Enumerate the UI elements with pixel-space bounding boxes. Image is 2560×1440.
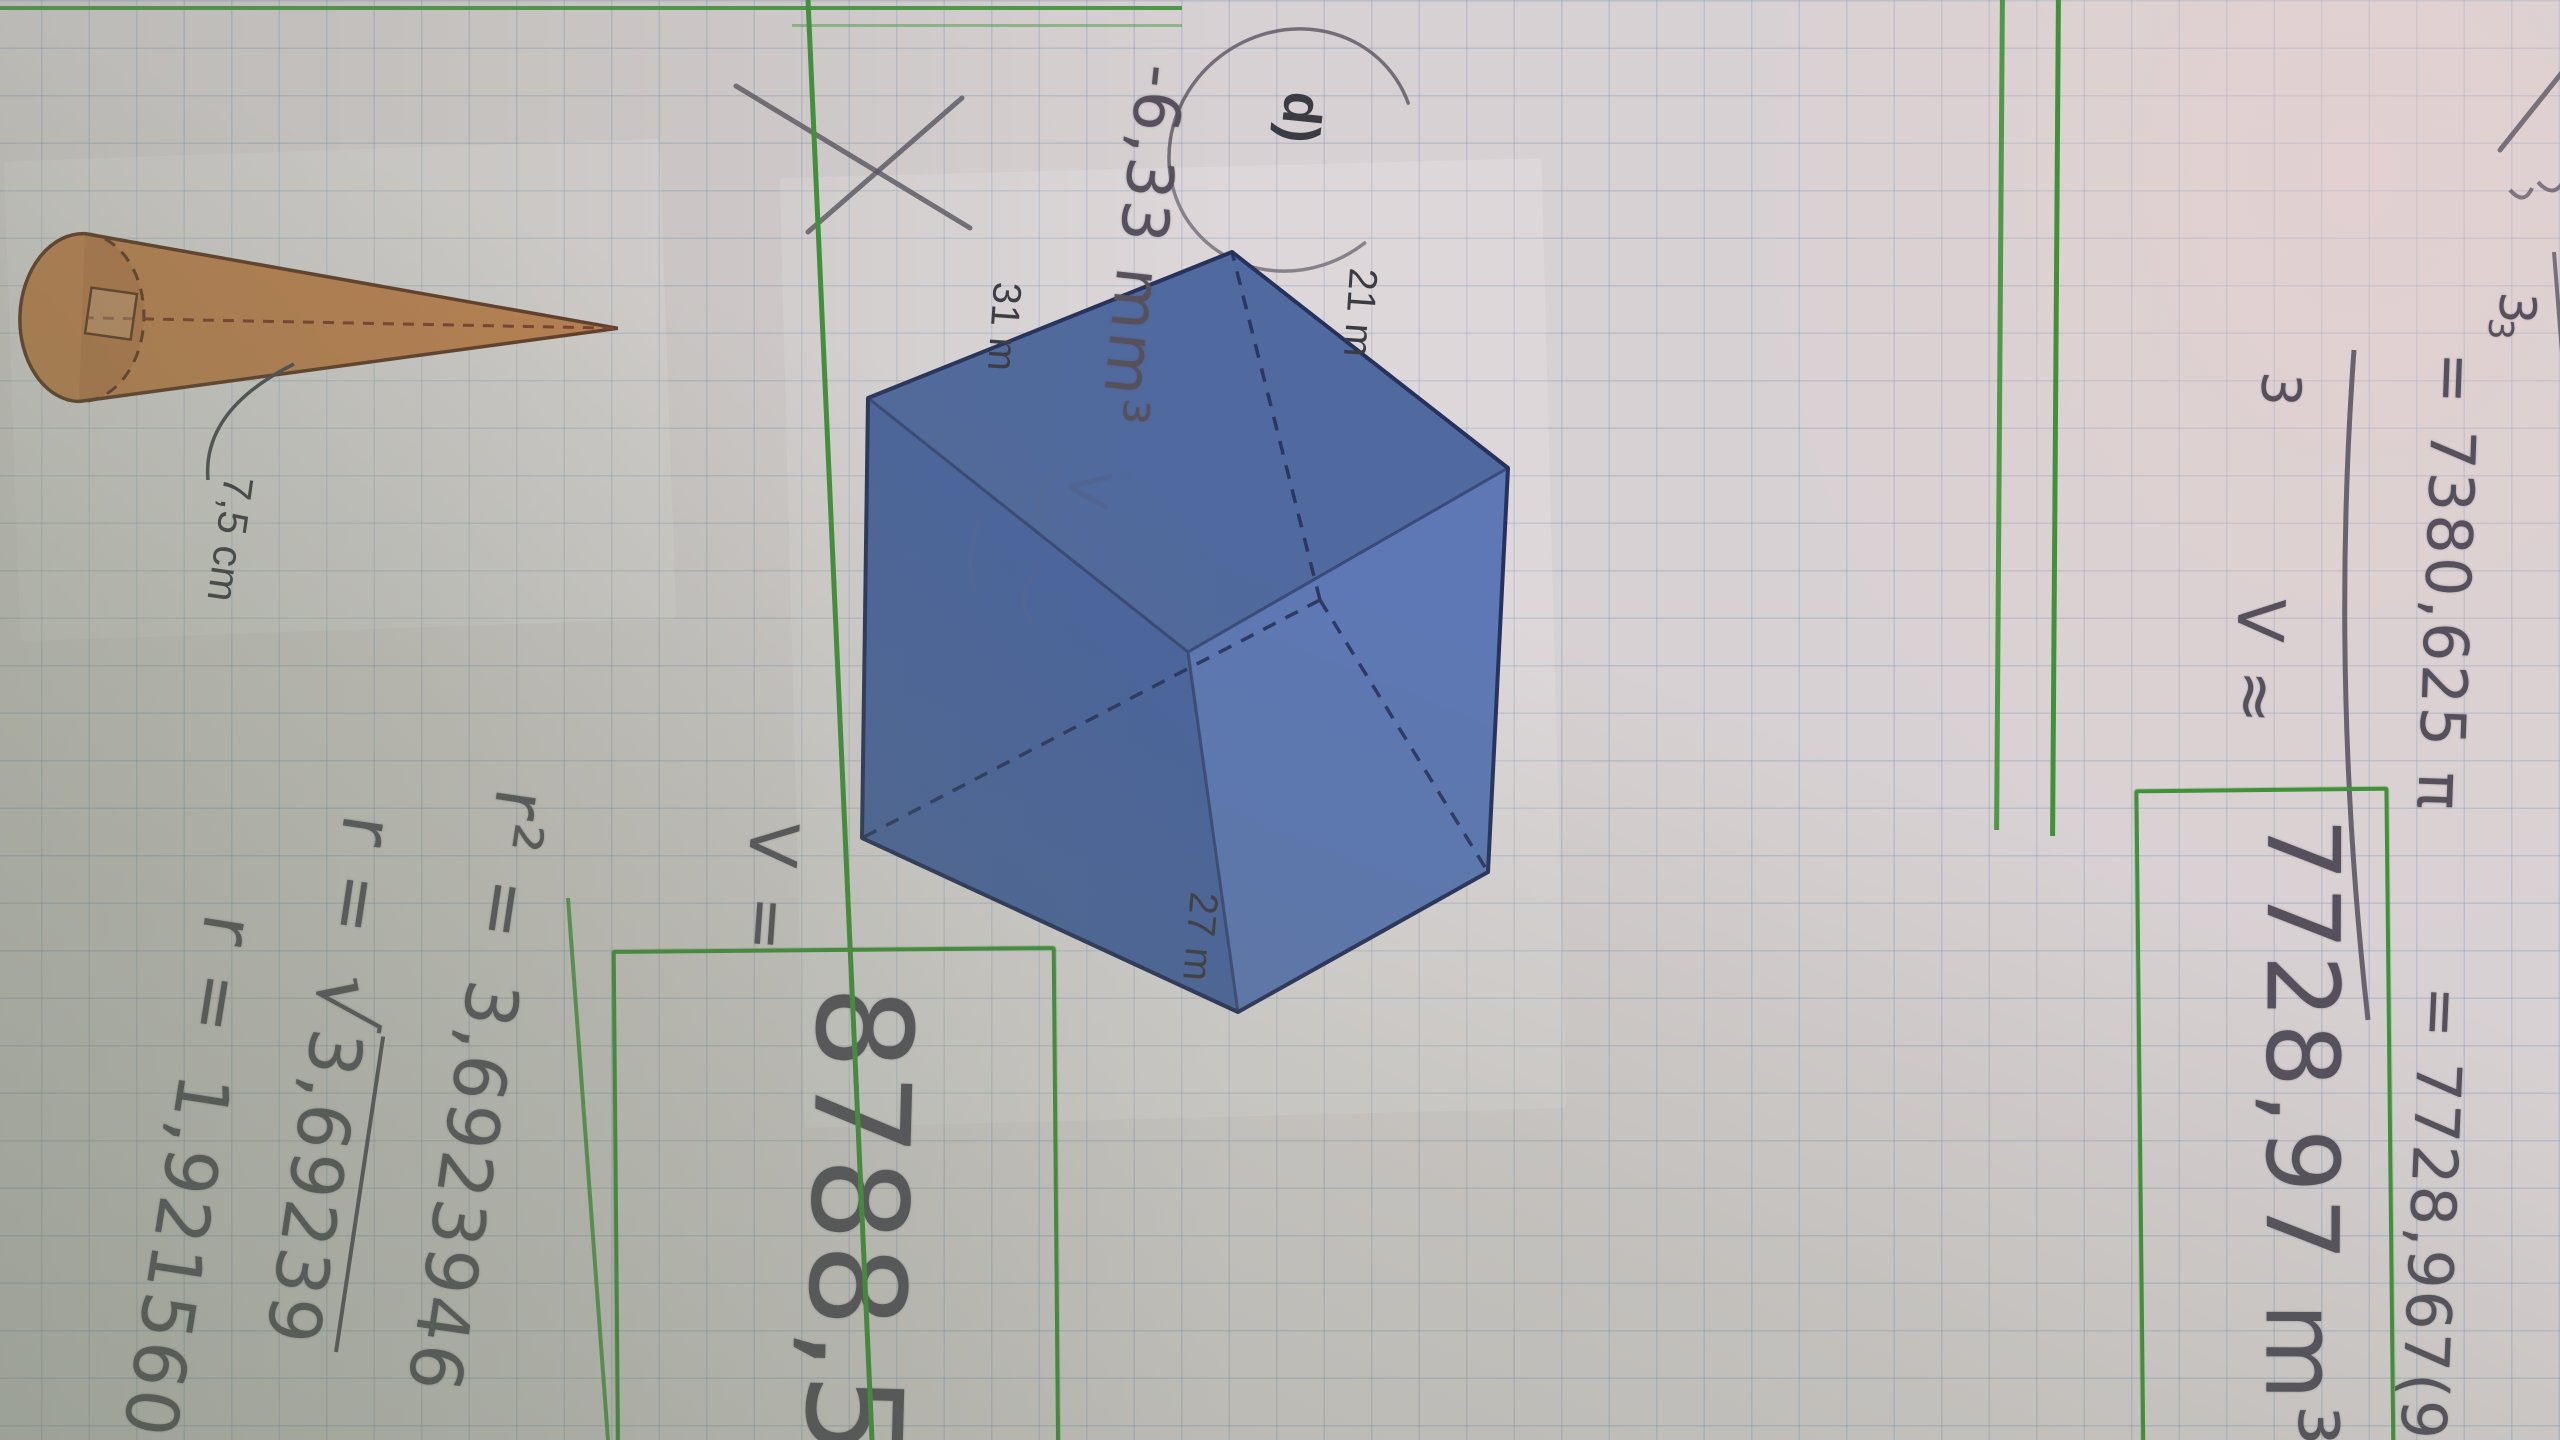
erased-strokes [940, 430, 1100, 730]
prism-dim-top: 21 m [1334, 267, 1385, 359]
volume-fraction-denominator: 3 [2248, 370, 2313, 409]
volume-result-continuation: = 7728,967(98 [2384, 985, 2479, 1440]
volume-fraction-numerator: = 7380,625 π [2403, 351, 2492, 814]
notebook-page: 3 3 = 7380,625 π 3 = 7728,967(98 V ≈ 772… [0, 0, 2560, 1440]
radicand-value: 3,69239 [249, 1024, 385, 1353]
r-squared-value: 3,6923946 [391, 975, 536, 1399]
exponent-fragment: 3 [2479, 317, 2520, 341]
section-divider-line [1994, 0, 2005, 830]
r-result-value: 1,921560 [106, 1069, 246, 1440]
margin-line [0, 6, 1182, 10]
work-line-2: r = √3,69239 [246, 810, 422, 1354]
prism-dim-right: 27 m [1173, 890, 1226, 983]
section-divider-short [550, 880, 630, 1440]
r-lhs: r = [310, 810, 411, 943]
section-divider-slanted [780, 0, 900, 1440]
answer-box-top: 7728,97 m³ [2134, 787, 2395, 1440]
r-result-lhs: r = [170, 909, 272, 1042]
prism-dim-left: 31 m [978, 281, 1029, 373]
right-angle-marker [85, 288, 137, 340]
work-line-3: r = 1,921560 [106, 909, 272, 1440]
r-squared-lhs: r² = [458, 784, 564, 948]
work-line-1: r² = 3,6923946 [391, 784, 564, 1400]
notebook-photo: 3 3 = 7380,625 π 3 = 7728,967(98 V ≈ 772… [0, 0, 2560, 1440]
volume-approx-label: V ≈ [2217, 596, 2298, 729]
cone-figure [0, 180, 680, 620]
boxed-volume-answer: 7728,97 m³ [2242, 817, 2361, 1440]
section-divider-line [2050, 0, 2061, 836]
